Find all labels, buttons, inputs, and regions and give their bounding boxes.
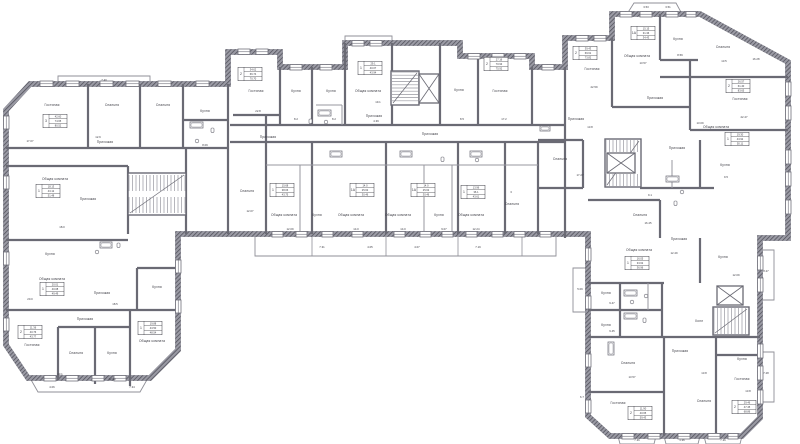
balcony-area-label: 7.19 bbox=[475, 245, 481, 249]
room-label: Кухня bbox=[737, 357, 747, 361]
apartment-area-value: 43.94 bbox=[370, 71, 377, 75]
room-label: Прихожая bbox=[568, 117, 585, 121]
room-label: Общая комната bbox=[338, 213, 364, 217]
room-label: Гостиная bbox=[732, 97, 747, 101]
area-dimension: 13.57 bbox=[640, 61, 647, 65]
area-dimension: 13.09 bbox=[697, 121, 704, 125]
sink bbox=[324, 120, 328, 124]
room-label: Спальня bbox=[553, 157, 567, 161]
apartment-area-value: 13.96 bbox=[473, 186, 480, 190]
room-label: Прихожая bbox=[260, 135, 277, 139]
stairs-elevators-layer bbox=[128, 71, 749, 335]
apartment-area-value: 70.93 bbox=[496, 62, 503, 66]
apartment-area-value: 59.43 bbox=[640, 416, 647, 420]
area-dimension: 8.09 bbox=[202, 143, 208, 147]
room-label: Общая комната bbox=[624, 54, 650, 58]
apartment-area-value: 18.13 bbox=[48, 185, 55, 189]
apartment-rooms-count: 2 bbox=[630, 411, 632, 415]
apartment-rooms-count: 1 bbox=[42, 287, 44, 291]
apartment-area-value: 15.68 bbox=[282, 184, 289, 188]
room-label: Спальня bbox=[716, 45, 730, 49]
apartment-rooms-count: 2 bbox=[734, 405, 736, 409]
room-label: Кухня bbox=[45, 252, 55, 256]
area-dimension: 17.27 bbox=[577, 173, 584, 177]
apartment-rooms-count: 1А bbox=[412, 188, 417, 192]
apartment-rooms-count: 1А bbox=[632, 31, 637, 35]
apartment-rooms-count: 2 bbox=[20, 330, 22, 334]
area-dimension: 13.8 bbox=[701, 371, 707, 375]
area-dimension: 12.09 bbox=[733, 273, 740, 277]
area-dimension: 8.2 bbox=[332, 117, 336, 121]
apartment-rooms-count: 1 bbox=[463, 190, 465, 194]
apartment-area-value: 47.45 bbox=[744, 405, 751, 409]
apartment-area-value: 43.92 bbox=[737, 137, 744, 141]
apartment-area-value: 30.46 bbox=[362, 193, 369, 197]
apartment-area-value: 15.15 bbox=[643, 27, 650, 31]
room-label: Кухня bbox=[434, 213, 444, 217]
room-label: Кухня bbox=[200, 109, 210, 113]
apartment-rooms-count: 1 bbox=[38, 189, 40, 193]
room-label: Кухня bbox=[312, 213, 322, 217]
room-label: Спальня bbox=[505, 202, 519, 206]
apartment-area-value: 36.96 bbox=[637, 266, 644, 270]
area-dimension: 13.5 bbox=[721, 59, 727, 63]
apartment-area-value: 36.1 bbox=[473, 190, 479, 194]
room-label: Гостиная bbox=[24, 343, 39, 347]
room-label: Спальня bbox=[697, 399, 711, 403]
room-label: Общая комната bbox=[458, 213, 484, 217]
room-label: Прихожая bbox=[669, 146, 686, 150]
sink bbox=[680, 190, 684, 194]
room-label: Общая комната bbox=[139, 339, 165, 343]
apartment-rooms-count: 2 bbox=[486, 62, 488, 66]
apartment-area-value: 51.48 bbox=[48, 194, 55, 198]
balcony-area-label: 8.27 bbox=[763, 269, 769, 273]
apartment-area-value: 39.43 bbox=[585, 47, 592, 51]
area-dimension: 9.45 bbox=[609, 329, 615, 333]
area-dimension: 12.49 bbox=[671, 251, 678, 255]
apartment-rooms-count: 1А bbox=[351, 188, 356, 192]
apartment-area-value: 66.74 bbox=[250, 72, 257, 76]
apartment-area-value: 80.52 bbox=[55, 124, 62, 128]
apartment-area-value: 26.57 bbox=[738, 80, 745, 84]
room-label: Кухня bbox=[326, 89, 336, 93]
room-label: Гостиная bbox=[584, 67, 599, 71]
area-dimension: 18.5 bbox=[112, 302, 118, 306]
apartment-area-value: 50.11 bbox=[737, 142, 744, 146]
apartment-area-value: 14.0 bbox=[423, 184, 429, 188]
area-dimension: 3 bbox=[510, 190, 512, 194]
area-dimension: 12.07 bbox=[247, 209, 254, 213]
area-dimension: 13.8 bbox=[745, 389, 751, 393]
room-label: Прихожая bbox=[671, 237, 688, 241]
balcony-area-label: 1.36 bbox=[679, 438, 685, 442]
apartment-rooms-count: 1 bbox=[627, 261, 629, 265]
apartment-area-value: 43.50 bbox=[150, 326, 157, 330]
apartment-area-value: 29.1 bbox=[370, 62, 376, 66]
apartment-area-value: 40.76 bbox=[30, 330, 37, 334]
room-label: Спальня bbox=[156, 103, 170, 107]
room-label: Гостиная bbox=[734, 377, 749, 381]
room-label: Общая комната bbox=[626, 248, 652, 252]
area-dimension: 19.1 bbox=[375, 100, 381, 104]
area-dimension: 12.24 bbox=[473, 227, 480, 231]
room-label: Спальня bbox=[105, 103, 119, 107]
area-dimension: 16.28 bbox=[753, 57, 760, 61]
toilet bbox=[643, 318, 646, 322]
area-dimension: 13.57 bbox=[629, 375, 636, 379]
apartment-area-value: 43.77 bbox=[30, 335, 37, 339]
room-label: Гостиная bbox=[44, 103, 59, 107]
room-label: Холл bbox=[695, 319, 703, 323]
room-label: Прихожая bbox=[97, 140, 114, 144]
balcony-area-label: 7.28 bbox=[763, 371, 769, 375]
apartment-area-value: 75.92 bbox=[496, 67, 503, 71]
apartment-area-value: 27.16 bbox=[496, 58, 503, 62]
room-label: Прихожая bbox=[94, 291, 111, 295]
balcony-area-label: 7.40 bbox=[101, 78, 107, 82]
toilet bbox=[211, 128, 214, 132]
area-dimension: 9.5 bbox=[724, 175, 728, 179]
balcony-area-label: 7.36 bbox=[720, 438, 726, 442]
apartment-area-value: 31.36 bbox=[643, 31, 650, 35]
apartment-area-value: 40.07 bbox=[370, 66, 377, 70]
area-dimension: 22.47 bbox=[741, 115, 748, 119]
apartment-area-value: 34.62 bbox=[250, 68, 257, 72]
apartment-area-value: 25.62 bbox=[362, 188, 369, 192]
area-dimension: 8.5 bbox=[460, 117, 464, 121]
balcony-area-label: 4.07 bbox=[414, 245, 420, 249]
area-dimension: 13.8 bbox=[587, 125, 593, 129]
balcony-area-label: 3.51 bbox=[665, 5, 671, 9]
apartment-area-value: 48.54 bbox=[150, 331, 157, 335]
sink bbox=[630, 300, 634, 304]
balcony-area-label: 7.34 bbox=[129, 385, 135, 389]
area-dimension: 12.9 bbox=[95, 135, 101, 139]
apartment-rooms-count: 1 bbox=[360, 66, 362, 70]
apartment-area-value: 33.62 bbox=[637, 261, 644, 265]
balcony-area-label: 7.31 bbox=[319, 245, 325, 249]
room-label: Кухня bbox=[152, 285, 162, 289]
apartment-area-value: 38.06 bbox=[282, 188, 289, 192]
apartment-area-value: 42.60 bbox=[55, 115, 62, 119]
area-dimension: 17.2 bbox=[501, 117, 507, 121]
room-label: Спальня bbox=[621, 361, 635, 365]
area-dimension: 13.1 bbox=[57, 372, 63, 376]
room-label: Кухня bbox=[720, 163, 730, 167]
toilet bbox=[117, 243, 120, 247]
area-dimension: 22.8 bbox=[255, 109, 261, 113]
apartment-area-value: 43.12 bbox=[48, 189, 55, 193]
area-dimension: 22.59 bbox=[591, 85, 598, 89]
balcony-area-label: 3.53 bbox=[643, 5, 649, 9]
room-label: Прихожая bbox=[77, 317, 94, 321]
area-dimension: 6.7 bbox=[580, 395, 584, 399]
room-label: Прихожая bbox=[647, 96, 664, 100]
apartment-rooms-count: 1 bbox=[727, 137, 729, 141]
apartment-area-value: 25.62 bbox=[423, 188, 430, 192]
room-label: Спальня bbox=[240, 189, 254, 193]
room-label: Кухня bbox=[601, 323, 611, 327]
room-label: Кухня bbox=[673, 37, 683, 41]
room-label: Общая комната bbox=[355, 89, 381, 93]
room-label: Кухня bbox=[291, 89, 301, 93]
toilet bbox=[674, 201, 677, 205]
room-label: Спальня bbox=[69, 351, 83, 355]
area-dimension: 8.2 bbox=[294, 117, 298, 121]
apartment-area-value: 29.46 bbox=[744, 401, 751, 405]
area-dimension: 9.47 bbox=[609, 301, 615, 305]
area-dimension: 14.0 bbox=[400, 227, 406, 231]
area-dimension: 9.07 bbox=[441, 227, 447, 231]
apartment-area-value: 40.08 bbox=[52, 287, 59, 291]
balcony-area-label: 5.09 bbox=[577, 287, 583, 291]
apartment-area-value: 74.65 bbox=[55, 119, 62, 123]
room-label: Кухня bbox=[601, 291, 611, 295]
floor-plan-page: ГостинаяСпальняСпальняКухняПрихожаяОбщая… bbox=[0, 0, 800, 444]
apartment-area-value: 43.61 bbox=[473, 195, 480, 199]
area-dimension: 16.45 bbox=[645, 221, 652, 225]
sink bbox=[475, 158, 479, 162]
room-label: Общая комната bbox=[42, 177, 68, 181]
room-label: Прихожая bbox=[672, 349, 689, 353]
area-dimension: 17.07 bbox=[27, 139, 34, 143]
balcony-area-label: 4.06 bbox=[49, 385, 55, 389]
area-dimension: 9.1 bbox=[648, 193, 652, 197]
apartment-area-value: 19.30 bbox=[737, 133, 744, 137]
room-label: Кухня bbox=[107, 351, 117, 355]
apartment-area-value: 34.43 bbox=[643, 36, 650, 40]
room-label: Гостиная bbox=[492, 89, 507, 93]
room-label: Общая комната bbox=[271, 213, 297, 217]
apartment-area-value: 69.61 bbox=[585, 51, 592, 55]
balcony-area-label: 4.05 bbox=[367, 245, 373, 249]
room-label: Общая комната bbox=[703, 125, 729, 129]
apartment-area-value: 73.82 bbox=[585, 56, 592, 60]
room-label: Гостиная bbox=[610, 401, 625, 405]
area-dimension: 18.0 bbox=[59, 225, 65, 229]
room-label: Спальня bbox=[633, 213, 647, 217]
area-dimension: 12.39 bbox=[109, 377, 116, 381]
apartment-rooms-count: 2 bbox=[575, 51, 577, 55]
apartment-area-value: 61.40 bbox=[738, 84, 745, 88]
area-dimension: 4.39 bbox=[373, 119, 379, 123]
sink bbox=[644, 294, 648, 298]
apartment-area-value: 49.49 bbox=[52, 292, 59, 296]
apartment-rooms-count: 1 bbox=[140, 326, 142, 330]
room-label: Общая комната bbox=[39, 277, 65, 281]
apartment-area-value: 83.65 bbox=[738, 89, 745, 93]
apartment-area-value: 40.65 bbox=[640, 411, 647, 415]
apartment-area-value: 30.46 bbox=[423, 193, 430, 197]
apartment-area-value: 70.70 bbox=[250, 77, 257, 81]
apartment-area-value: 20.01 bbox=[52, 283, 59, 287]
balcony-area-label: 7.36 bbox=[634, 438, 640, 442]
room-label: Кухня bbox=[454, 88, 464, 92]
toilet bbox=[441, 157, 444, 161]
apartment-rooms-count: 2 bbox=[240, 72, 242, 76]
area-dimension: 20.0 bbox=[27, 297, 33, 301]
area-dimension: 12.09 bbox=[287, 227, 294, 231]
apartment-area-value: 19.88 bbox=[150, 322, 157, 326]
floor-plan-drawing: ГостинаяСпальняСпальняКухняПрихожаяОбщая… bbox=[0, 0, 800, 444]
apartment-rooms-count: 2 bbox=[728, 84, 730, 88]
room-label: Гостиная bbox=[248, 89, 263, 93]
room-label: Кухня bbox=[718, 255, 728, 259]
room-label: Прихожая bbox=[366, 114, 383, 118]
area-dimension: 14.0 bbox=[353, 227, 359, 231]
apartment-area-value: 43.75 bbox=[282, 193, 289, 197]
sink bbox=[95, 250, 99, 254]
sink bbox=[195, 139, 199, 143]
area-dimension: 8.59 bbox=[677, 53, 683, 57]
apartment-rooms-count: 1 bbox=[272, 188, 274, 192]
room-label: Общая комната bbox=[385, 213, 411, 217]
apartment-area-value: 11.90 bbox=[640, 407, 647, 411]
room-label: Прихожая bbox=[80, 197, 97, 201]
room-label: Прихожая bbox=[422, 132, 439, 136]
apartment-area-value: 16.05 bbox=[637, 257, 644, 261]
apartment-area-value: 14.0 bbox=[362, 184, 368, 188]
apartment-rooms-count: 3 bbox=[45, 119, 47, 123]
apartment-area-value: 68.86 bbox=[744, 410, 751, 414]
apartment-area-value: 11.36 bbox=[30, 326, 37, 330]
toilet bbox=[309, 119, 312, 123]
